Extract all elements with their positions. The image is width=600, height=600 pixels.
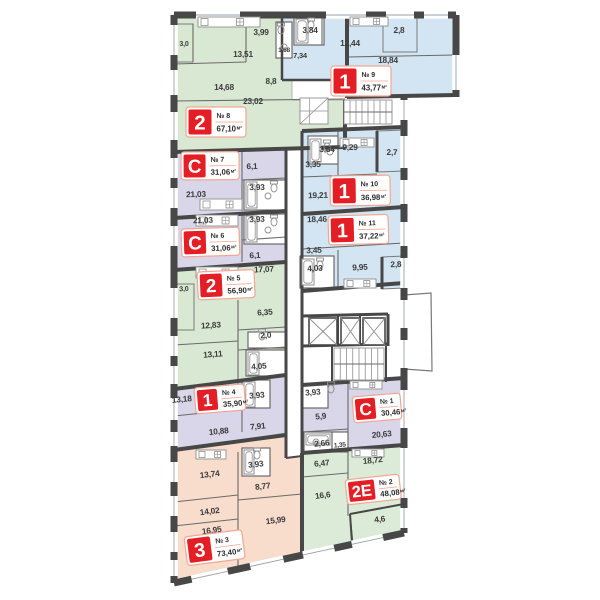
floor-plan-svg: 3,013,513,991,6814,688,823,027,343,8412,… — [0, 0, 600, 600]
elevator-icon — [309, 318, 337, 345]
apartment-7-badge[interactable]: С№ 731,06м² — [181, 152, 239, 180]
room-area-label: 4,6 — [374, 513, 387, 524]
badge-number-label: № 11 — [359, 219, 376, 227]
apartment-8-badge[interactable]: 2№ 867,10м² — [186, 107, 246, 137]
room-area-label: 6,47 — [314, 457, 331, 469]
room-area-label: 21,03 — [186, 189, 207, 199]
apartment-10-badge[interactable]: 1№ 1036,98м² — [330, 175, 390, 206]
kitchen-icon — [200, 199, 242, 210]
badge-number-label: № 1 — [380, 397, 394, 406]
room-area-label: 3,0 — [179, 286, 189, 293]
badge-number-label: № 7 — [211, 156, 225, 164]
room-area-label: 12,83 — [201, 319, 222, 330]
room-area-label: 6,1 — [249, 250, 261, 260]
kitchen-icon — [198, 17, 260, 27]
room-area-label: 8,77 — [254, 480, 271, 492]
badge-type-label: С — [188, 232, 203, 253]
floor-plan-canvas: 3,013,513,991,6814,688,823,027,343,8412,… — [0, 0, 600, 600]
room-area-label: 18,72 — [362, 454, 383, 466]
shaft-icon — [300, 98, 328, 124]
room-area-label: 2,7 — [386, 147, 398, 157]
badge-number-label: № 2 — [379, 478, 394, 487]
room-area-label: 6,35 — [257, 307, 273, 318]
badge-number-label: № 9 — [362, 71, 376, 79]
room-area-label: 10,88 — [208, 425, 229, 437]
room-area-label: 13,18 — [171, 393, 192, 405]
badge-type-label: С — [188, 156, 202, 177]
room-area-label: 18,46 — [307, 214, 328, 225]
apartment-11-badge[interactable]: 1№ 1137,22м² — [328, 214, 389, 245]
kitchen-icon — [350, 17, 388, 26]
room-area-label: 13,11 — [203, 348, 224, 359]
kitchen-icon — [350, 381, 382, 389]
room-area-label: 9,29 — [342, 142, 358, 152]
room-area-label: 4,03 — [307, 263, 323, 274]
room-area-label: 5,9 — [315, 410, 327, 421]
inner-wall — [302, 314, 388, 316]
badge-type-label: 1 — [337, 220, 349, 242]
room-area-label: 3,99 — [253, 27, 269, 37]
room-area-label: 3,0 — [179, 41, 188, 48]
room-area-label: 3,93 — [249, 214, 265, 224]
room-area-label: 3,84 — [319, 144, 335, 154]
badge-type-label: 1 — [339, 70, 350, 93]
room-area-label: 9,95 — [352, 262, 368, 273]
badge-number-label: № 4 — [222, 388, 236, 397]
room-area-label: 3,93 — [248, 458, 265, 470]
room-area-label: 3,93 — [305, 386, 322, 397]
room-area-label: 16,6 — [314, 489, 331, 501]
room-area-label: 19,21 — [308, 190, 329, 200]
kitchen-icon — [344, 279, 376, 288]
room-area-label: 3,93 — [249, 389, 266, 400]
badge-number-label: № 5 — [227, 274, 241, 283]
room-area-label: 2,66 — [314, 437, 331, 449]
badge-number-label: № 6 — [211, 232, 225, 240]
stairs-icon — [344, 100, 392, 124]
elevator-icon — [363, 318, 385, 345]
badge-type-label: 2 — [205, 275, 216, 296]
apartment-4-badge[interactable]: 1№ 435,90м² — [194, 384, 249, 414]
apartment-9-badge[interactable]: 1№ 943,77м² — [331, 66, 391, 96]
apartment-5-badge[interactable]: 2№ 556,90м² — [197, 269, 255, 300]
room-area-label: 14,68 — [214, 82, 234, 92]
room-area-label: 18,84 — [378, 55, 398, 65]
room-area-label: 4,05 — [251, 360, 268, 371]
badge-type-label: 2Е — [351, 482, 373, 502]
room-area-label: 8,8 — [266, 76, 278, 86]
stairs-icon — [334, 348, 384, 380]
room-area-label: 20,63 — [371, 428, 392, 440]
room-area-label: 17,07 — [254, 264, 275, 275]
room-area-label: 21,03 — [193, 215, 214, 226]
room-area-label: 3,93 — [249, 182, 265, 192]
room-area-label: 7,34 — [293, 51, 308, 60]
room-area-label: 7,91 — [250, 420, 267, 431]
room-area-label: 3,84 — [302, 25, 318, 35]
apartment-6-badge[interactable]: С№ 631,06м² — [181, 227, 240, 257]
badge-number-label: № 10 — [361, 180, 379, 188]
apartment-1-badge[interactable]: С№ 130,46м² — [352, 393, 407, 423]
room-area-label: 1,35 — [334, 441, 347, 449]
room-area-label: 12,44 — [340, 38, 360, 48]
room-area-label: 23,02 — [243, 96, 263, 106]
room-area-label: 6,1 — [246, 161, 258, 171]
room-area-label: 2,0 — [260, 330, 272, 341]
room-area-label: 1,68 — [278, 47, 290, 54]
room-area-label: 13,51 — [233, 49, 253, 59]
badge-number-label: № 8 — [217, 112, 231, 120]
room-area-label: 3,45 — [306, 245, 322, 256]
badge-type-label: 2 — [194, 111, 205, 134]
room-area-label: 2,8 — [390, 259, 402, 269]
room-area-label: 2,8 — [394, 25, 406, 35]
room-area-label: 3,35 — [305, 159, 321, 169]
badge-type-label: 1 — [338, 180, 350, 203]
kitchen-icon — [196, 450, 226, 459]
elevator-icon — [341, 318, 360, 345]
badge-type-label: С — [359, 399, 373, 420]
